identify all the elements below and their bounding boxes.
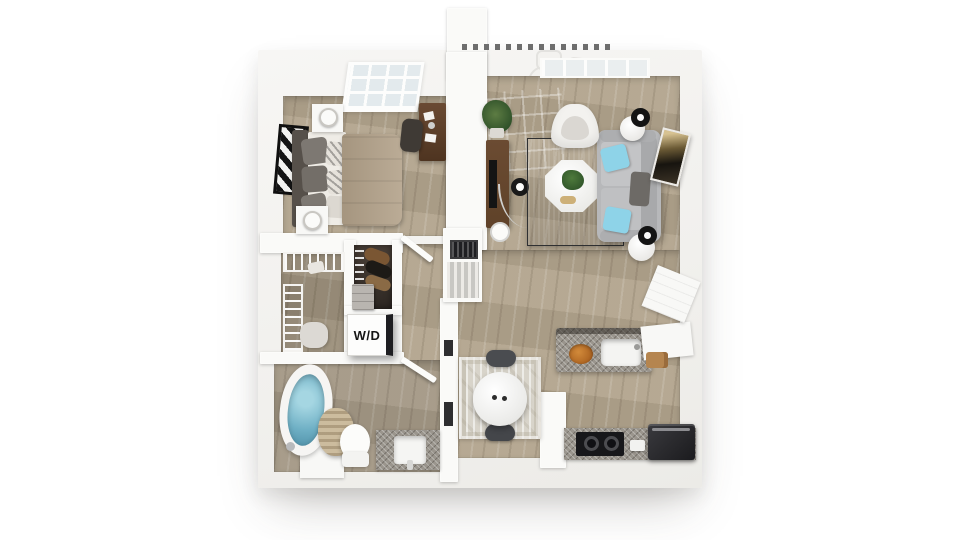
sink-faucet (407, 460, 413, 470)
desk-papers (424, 133, 436, 142)
washer-dryer-label: W/D (354, 328, 381, 343)
burner (604, 436, 619, 451)
island-sink (601, 339, 641, 366)
desk-chair (399, 118, 423, 153)
bedroom-window (341, 62, 424, 112)
fruit-bowl (569, 344, 593, 364)
floor-plan-render: W/D (0, 0, 960, 540)
table-decor (502, 396, 507, 401)
washer-dryer-unit: W/D (347, 314, 393, 356)
counter-appliance (630, 440, 645, 451)
tub-faucet (286, 442, 295, 451)
balcony-glass-doors (540, 58, 650, 78)
desk-lamp (428, 122, 435, 129)
wall-closet-divider-east (392, 240, 402, 354)
wall-entry (540, 392, 566, 468)
wall-door-frame-mark (444, 340, 453, 356)
plant-pot (490, 128, 504, 138)
vent-grate (450, 240, 478, 259)
island-faucet (634, 344, 640, 350)
balcony-railing (462, 44, 612, 50)
bed-blanket (342, 134, 402, 226)
wall-bedroom-living (446, 52, 487, 250)
wall-dining-west (440, 298, 458, 482)
burner (584, 436, 599, 451)
table-lamp (303, 211, 322, 230)
refrigerator-handles (652, 428, 690, 431)
hallway-floor (396, 244, 446, 364)
table-lamp (319, 108, 338, 127)
paper-bags (646, 352, 668, 368)
tv (489, 160, 497, 208)
closet-chair (300, 322, 328, 348)
dining-chair-south (485, 424, 515, 441)
coffee-table-plant (562, 170, 584, 190)
arc-lamp-base (490, 222, 510, 242)
bed-pillow (301, 165, 329, 193)
coffee-table-tray (560, 196, 576, 204)
black-lamp (638, 226, 657, 245)
dining-chair-north (486, 350, 516, 367)
sofa-throw (629, 171, 651, 206)
toilet-tank (342, 452, 369, 467)
black-lamp (631, 108, 650, 127)
blue-pillow (602, 206, 632, 234)
table-decor (492, 395, 497, 400)
dining-table (473, 372, 527, 426)
louver-panel (447, 262, 479, 298)
wall-door-frame-mark (444, 402, 453, 426)
closet-dresser (352, 284, 374, 310)
